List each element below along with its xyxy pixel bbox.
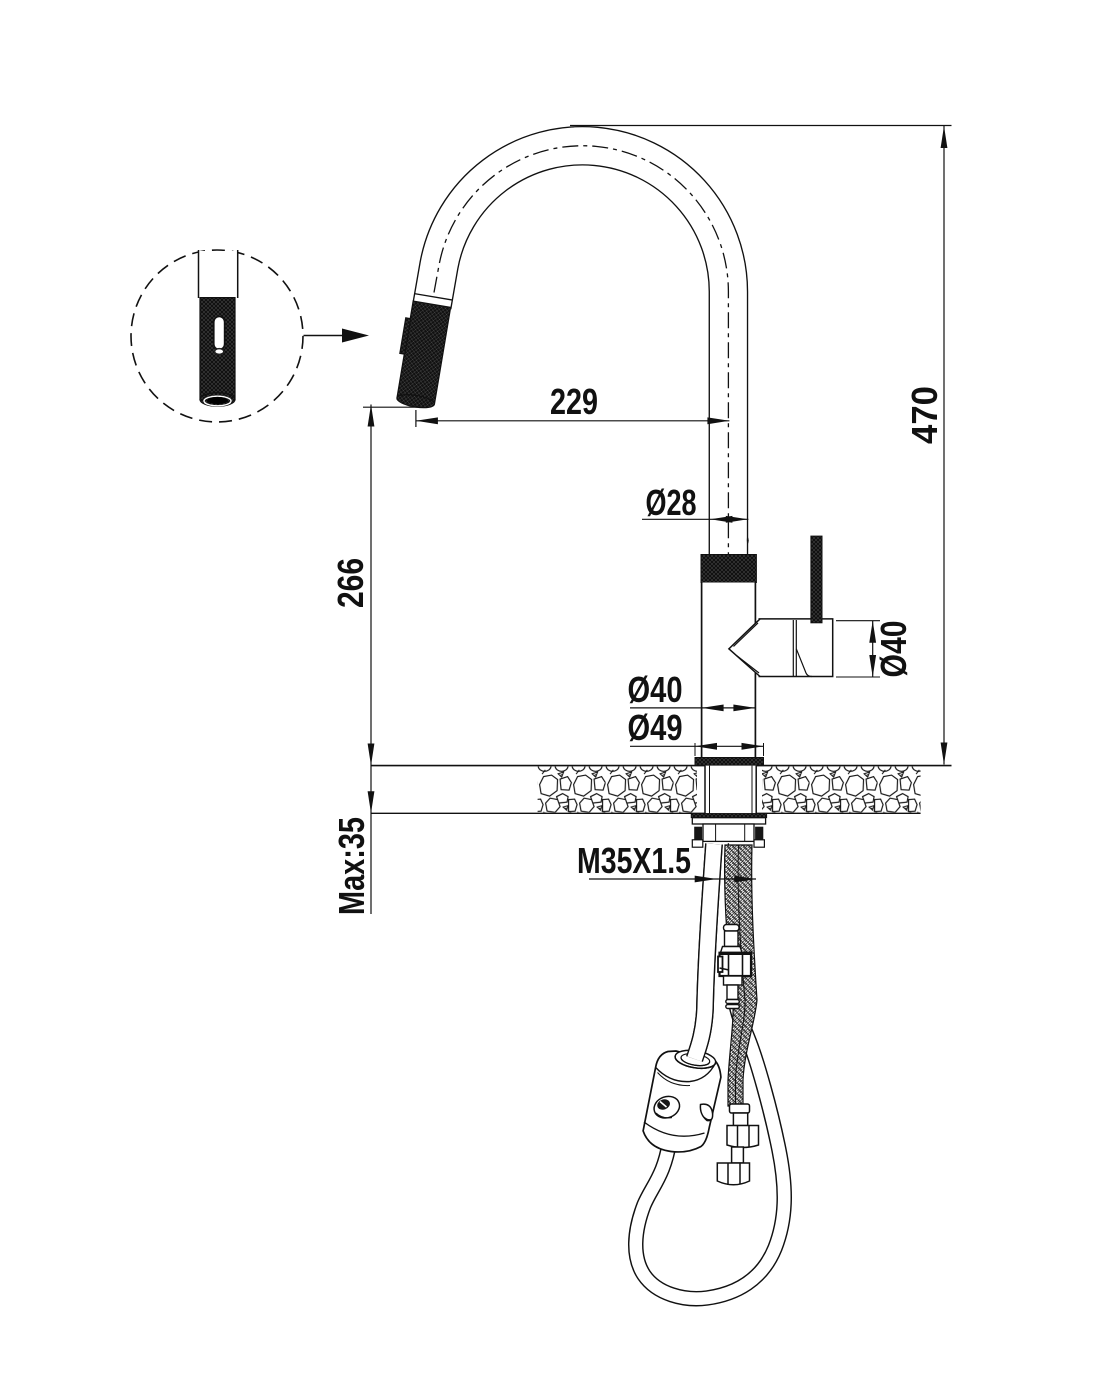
svg-text:M35X1.5: M35X1.5 xyxy=(577,840,691,881)
svg-text:Ø28: Ø28 xyxy=(646,482,697,523)
svg-text:Ø49: Ø49 xyxy=(628,707,683,748)
svg-text:Max:35: Max:35 xyxy=(331,817,372,915)
svg-text:Ø40: Ø40 xyxy=(628,669,683,710)
svg-text:229: 229 xyxy=(550,381,598,422)
svg-text:266: 266 xyxy=(330,558,371,608)
svg-text:470: 470 xyxy=(904,386,945,444)
svg-text:Ø40: Ø40 xyxy=(873,621,914,678)
